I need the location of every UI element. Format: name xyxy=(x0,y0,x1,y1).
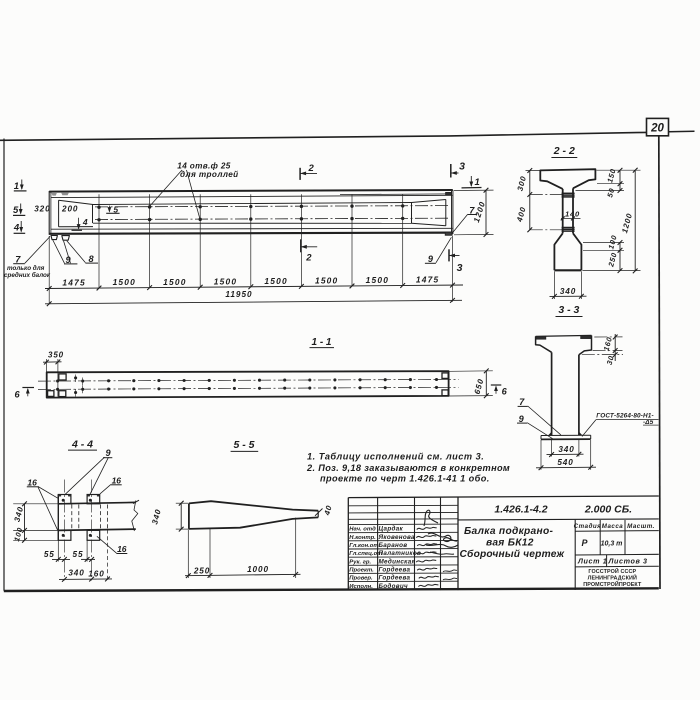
svg-text:6: 6 xyxy=(14,389,20,399)
svg-text:4: 4 xyxy=(13,223,20,234)
svg-text:ГОССТРОЙ СССР: ГОССТРОЙ СССР xyxy=(588,567,636,575)
svg-text:Р: Р xyxy=(581,538,588,548)
svg-text:Цардак: Цардак xyxy=(379,525,404,533)
svg-text:Рук. гр.: Рук. гр. xyxy=(349,559,371,565)
svg-text:340: 340 xyxy=(558,445,574,454)
svg-text:1475: 1475 xyxy=(416,275,439,285)
svg-text:3: 3 xyxy=(459,161,465,173)
svg-text:3 - 3: 3 - 3 xyxy=(558,304,579,316)
svg-text:11950: 11950 xyxy=(225,290,252,299)
svg-text:1: 1 xyxy=(14,181,19,192)
svg-text:1000: 1000 xyxy=(247,565,269,574)
svg-text:Лист 1: Лист 1 xyxy=(577,557,607,566)
svg-text:9: 9 xyxy=(428,254,434,264)
svg-text:Палатников: Палатников xyxy=(379,550,422,557)
svg-text:Масса: Масса xyxy=(602,523,624,530)
svg-text:Провер.: Провер. xyxy=(349,576,373,582)
svg-text:350: 350 xyxy=(48,351,64,360)
svg-text:7: 7 xyxy=(15,255,21,265)
svg-text:Мединская: Мединская xyxy=(379,557,416,565)
svg-text:Листов 3: Листов 3 xyxy=(608,556,648,565)
svg-text:340: 340 xyxy=(560,287,576,296)
svg-text:200: 200 xyxy=(61,205,78,214)
svg-text:55: 55 xyxy=(44,550,55,559)
svg-text:160: 160 xyxy=(88,569,104,578)
svg-text:1500: 1500 xyxy=(366,275,389,285)
svg-text:Балка подкрано-: Балка подкрано- xyxy=(464,526,553,537)
svg-text:Нач. отд: Нач. отд xyxy=(349,527,376,533)
svg-text:5: 5 xyxy=(13,205,19,216)
svg-text:1500: 1500 xyxy=(315,276,338,286)
svg-text:только для: только для xyxy=(7,264,45,272)
svg-text:55: 55 xyxy=(73,550,84,559)
svg-text:250: 250 xyxy=(193,566,210,575)
svg-text:2: 2 xyxy=(305,252,312,263)
svg-text:1500: 1500 xyxy=(163,277,186,287)
svg-text:1. Таблицу исполнений см. лис: 1. Таблицу исполнений см. лист 3. xyxy=(307,452,484,462)
svg-text:6: 6 xyxy=(502,386,508,396)
svg-text:4: 4 xyxy=(82,217,88,227)
svg-text:1500: 1500 xyxy=(214,276,237,286)
svg-text:Бодович: Бодович xyxy=(379,582,408,590)
svg-text:140: 140 xyxy=(565,209,580,218)
svg-text:16: 16 xyxy=(112,476,122,486)
svg-text:9: 9 xyxy=(519,414,525,424)
svg-text:1475: 1475 xyxy=(62,278,85,288)
svg-text:Гордеева: Гордеева xyxy=(379,574,411,582)
svg-text:средних балок: средних балок xyxy=(4,271,51,279)
svg-text:5: 5 xyxy=(113,204,118,214)
svg-text:Проект.: Проект. xyxy=(349,567,374,573)
svg-text:проекте по черт 1.426.1-41 1 о: проекте по черт 1.426.1-41 1 обо. xyxy=(320,474,490,484)
svg-text:2. Поз. 9,18 заказываются в ко: 2. Поз. 9,18 заказываются в конкретном xyxy=(306,463,510,473)
svg-text:Яковенова: Яковенова xyxy=(378,534,416,541)
svg-text:540: 540 xyxy=(557,458,573,467)
svg-text:20: 20 xyxy=(650,123,664,135)
svg-text:1.426.1-4.2: 1.426.1-4.2 xyxy=(494,504,547,516)
svg-text:Исполн.: Исполн. xyxy=(349,584,373,590)
svg-text:Масшт.: Масшт. xyxy=(627,523,655,530)
svg-text:Н.контр.: Н.контр. xyxy=(349,535,376,541)
svg-text:4 - 4: 4 - 4 xyxy=(71,439,93,451)
svg-text:Гл.кон.от: Гл.кон.от xyxy=(349,543,378,549)
svg-text:5 - 5: 5 - 5 xyxy=(233,439,254,451)
svg-text:ПРОМСТРОЙПРОЕКТ: ПРОМСТРОЙПРОЕКТ xyxy=(583,580,642,588)
svg-text:2: 2 xyxy=(308,163,315,174)
svg-text:3: 3 xyxy=(457,262,463,274)
svg-text:Стадия: Стадия xyxy=(574,523,602,530)
svg-text:1500: 1500 xyxy=(264,276,287,286)
svg-text:7: 7 xyxy=(519,397,525,407)
svg-text:10,3 т: 10,3 т xyxy=(601,540,623,547)
svg-text:9: 9 xyxy=(105,448,111,458)
svg-text:8: 8 xyxy=(88,254,94,264)
svg-text:Сборочный чертеж: Сборочный чертеж xyxy=(460,548,565,560)
svg-text:2.000 СБ.: 2.000 СБ. xyxy=(584,504,632,516)
svg-text:Гордеева: Гордеева xyxy=(379,565,411,573)
svg-text:1: 1 xyxy=(475,177,480,188)
svg-text:Гл.спец.от: Гл.спец.от xyxy=(349,551,382,557)
svg-text:Баранов: Баранов xyxy=(379,542,408,549)
svg-text:320: 320 xyxy=(34,205,50,214)
svg-text:2 - 2: 2 - 2 xyxy=(553,145,575,157)
svg-text:16: 16 xyxy=(27,477,37,487)
svg-text:16: 16 xyxy=(117,544,127,554)
svg-text:ЛЕНИНГРАДСКИЙ: ЛЕНИНГРАДСКИЙ xyxy=(588,573,637,581)
svg-text:340: 340 xyxy=(68,568,84,577)
svg-text:1500: 1500 xyxy=(113,277,136,287)
svg-text:1 - 1: 1 - 1 xyxy=(311,337,331,348)
svg-text:вая БК12: вая БК12 xyxy=(486,538,534,549)
